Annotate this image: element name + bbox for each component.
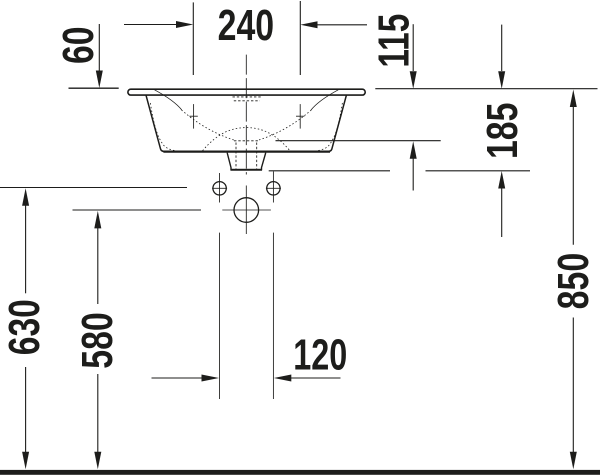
svg-text:580: 580 (74, 312, 122, 369)
svg-text:115: 115 (371, 14, 419, 68)
svg-text:185: 185 (479, 103, 527, 160)
svg-text:240: 240 (218, 2, 275, 50)
svg-text:850: 850 (550, 253, 598, 310)
svg-text:630: 630 (1, 299, 49, 355)
svg-text:120: 120 (293, 331, 347, 379)
svg-text:60: 60 (55, 27, 103, 65)
